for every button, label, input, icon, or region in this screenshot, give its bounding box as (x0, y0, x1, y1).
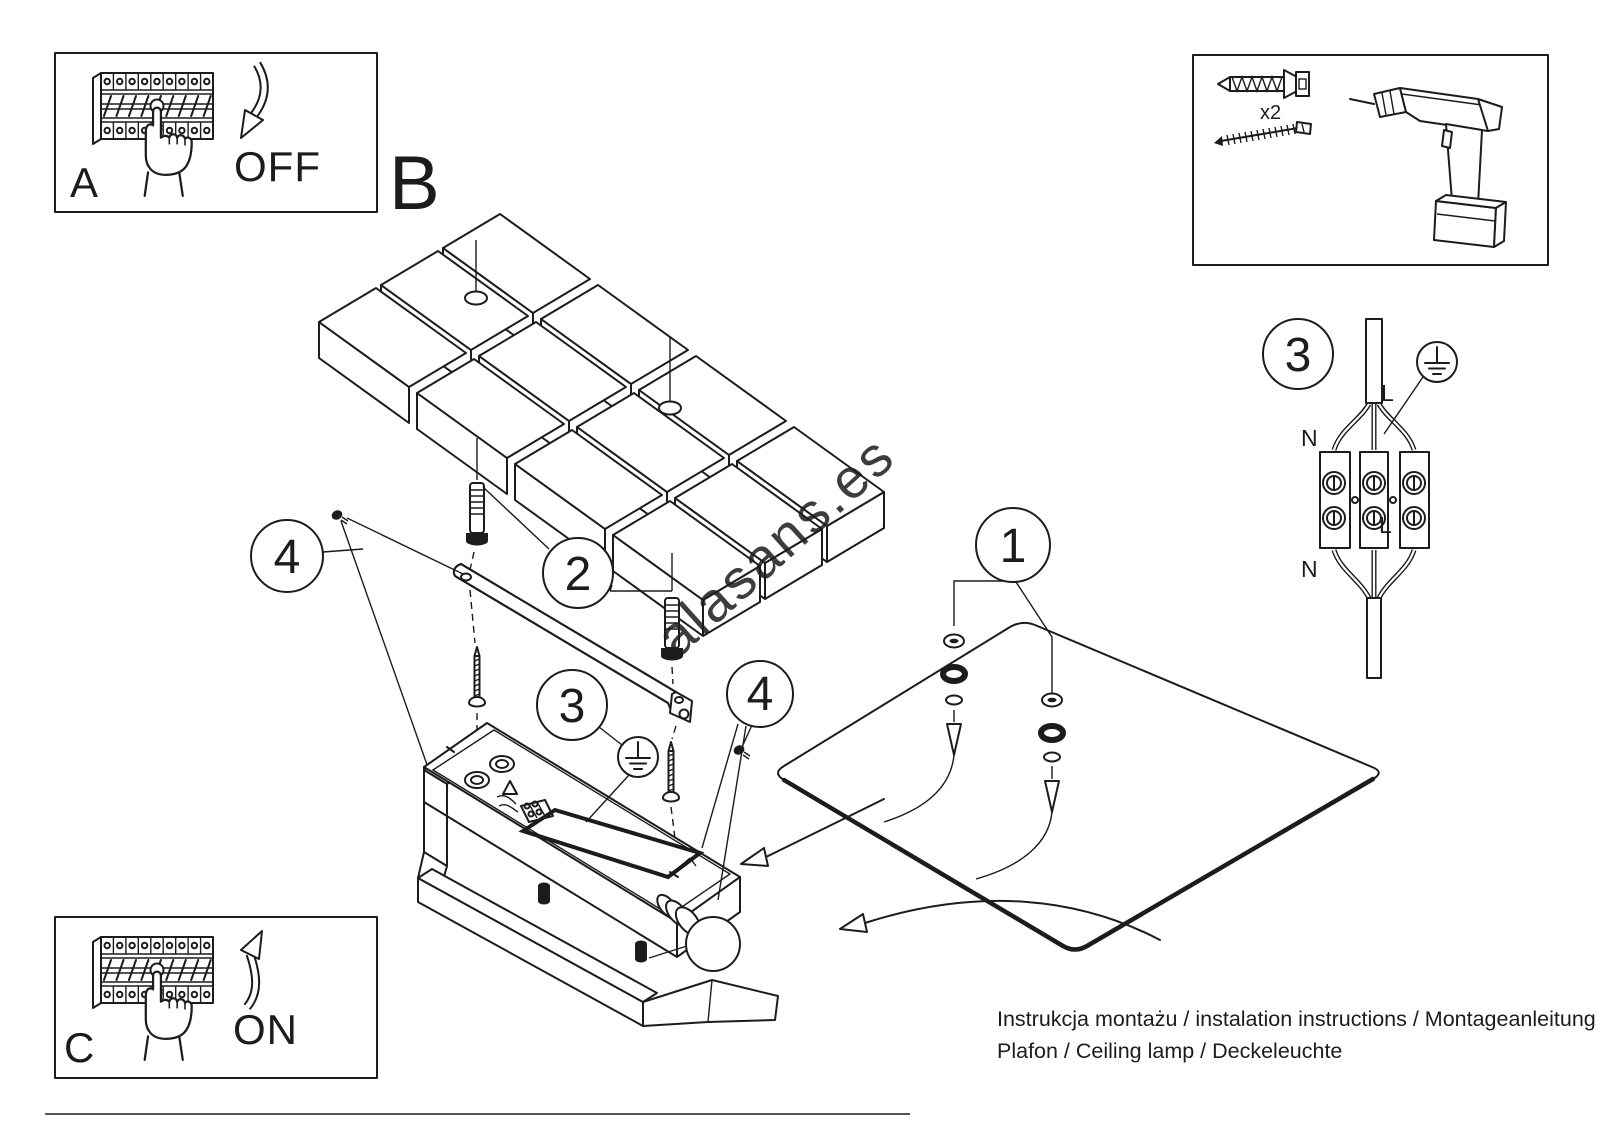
callout-4-right-number: 4 (747, 668, 774, 721)
down-arrow-icon (947, 724, 961, 755)
footer-line-1: Instrukcja montażu / instalation instruc… (997, 1007, 1596, 1031)
power-off-box: A OFF (55, 53, 377, 212)
fixture-cable (1367, 598, 1381, 678)
wire-label-n-top: N (1301, 425, 1318, 451)
tools-box: x2 (1193, 55, 1548, 265)
wire-label-l-top: L (1381, 380, 1394, 406)
arrow-head-icon (741, 848, 768, 866)
section-b-label: B (389, 141, 440, 226)
assembly-arrows (741, 799, 1160, 940)
instruction-sheet: A OFF C ON B x2 (0, 0, 1600, 1131)
wiring-detail: 3 N L N L (1263, 319, 1457, 678)
off-state-label: OFF (234, 143, 321, 190)
anchor-qty-label: x2 (1260, 102, 1281, 124)
diffuser-panel: 1 (778, 508, 1379, 950)
light-bulb-icon (686, 917, 740, 971)
down-arrow-icon (1045, 781, 1059, 812)
power-on-box: C ON (55, 917, 377, 1078)
terminal-block (1320, 452, 1429, 548)
on-state-label: ON (233, 1006, 298, 1053)
callout-4-left: 4 (251, 509, 463, 793)
box-a-label: A (70, 159, 98, 206)
wire-label-n-bottom: N (1301, 556, 1318, 582)
wiring-callout-number: 3 (1285, 329, 1312, 382)
callout-4-left-number: 4 (274, 531, 301, 584)
footer-line-2: Plafon / Ceiling lamp / Deckeleuchte (997, 1039, 1342, 1063)
callout-1: 1 (954, 508, 1052, 694)
lamp-housing (424, 723, 740, 971)
callout-3-left-number: 3 (559, 680, 586, 733)
box-c-label: C (64, 1024, 94, 1071)
callout-1-number: 1 (1000, 520, 1027, 573)
fastener-stack-right (976, 694, 1063, 880)
callout-2-number: 2 (565, 548, 592, 601)
mains-cable (1366, 319, 1382, 403)
diagram-canvas: A OFF C ON B x2 (0, 0, 1600, 1131)
footer: Instrukcja montażu / instalation instruc… (997, 1007, 1596, 1063)
arrow-head-icon (840, 914, 867, 932)
wire-label-l-bottom: L (1379, 512, 1392, 538)
